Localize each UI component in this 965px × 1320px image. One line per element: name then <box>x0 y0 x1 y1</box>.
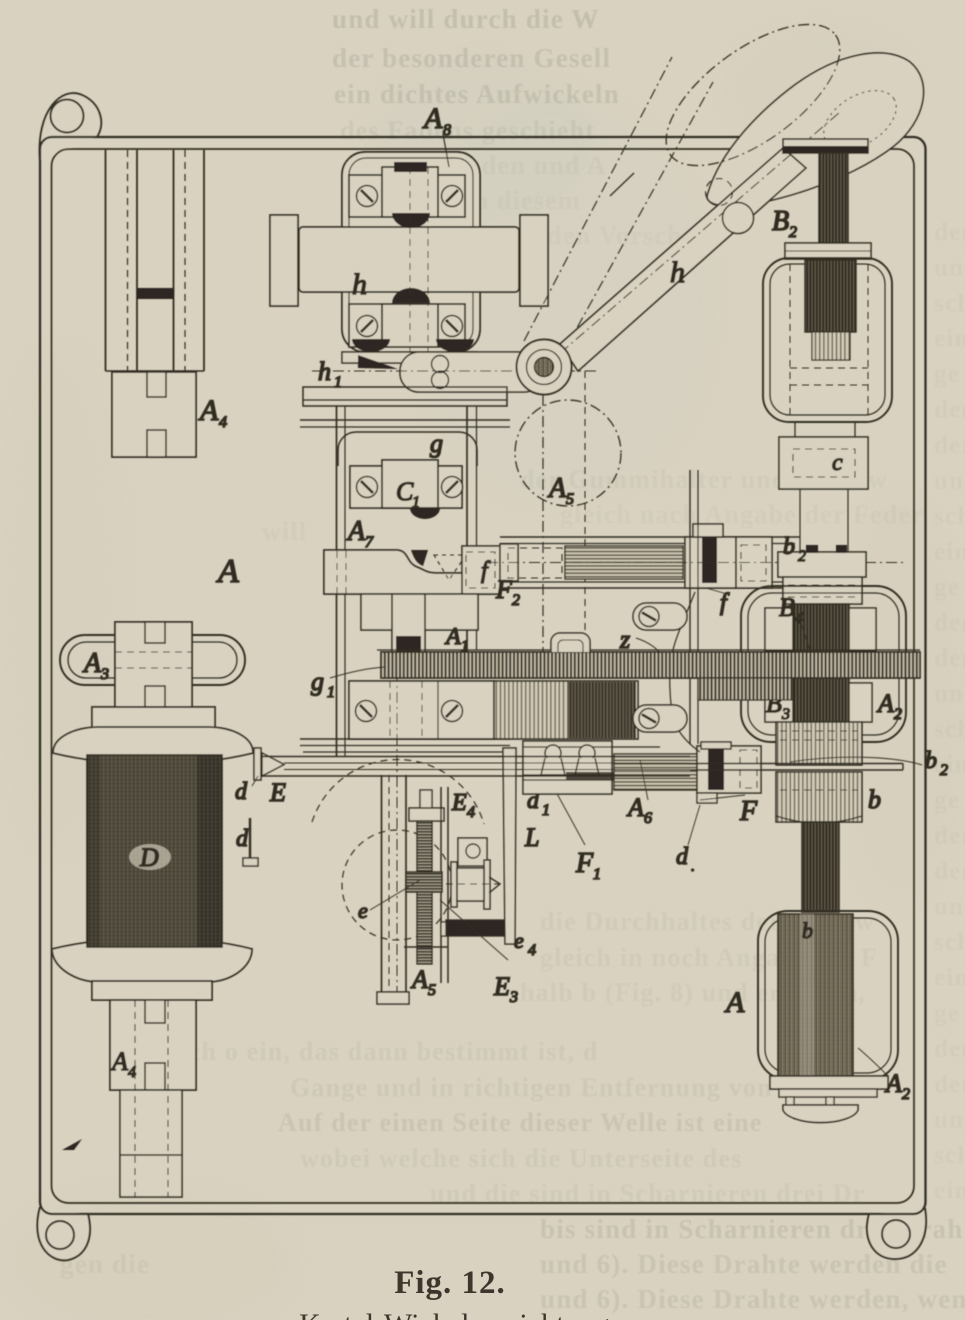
svg-text:4: 4 <box>219 414 227 431</box>
svg-text:6: 6 <box>644 810 652 827</box>
svg-text:2: 2 <box>940 762 948 779</box>
svg-text:g: g <box>311 667 324 696</box>
svg-text:b: b <box>868 785 881 814</box>
svg-text:e: e <box>514 928 524 953</box>
svg-text:den: den <box>934 823 965 850</box>
svg-text:der: der <box>934 432 965 459</box>
svg-text:F: F <box>575 848 594 879</box>
svg-text:B: B <box>772 206 789 237</box>
svg-text:ung: ung <box>934 255 965 282</box>
svg-text:A: A <box>82 648 102 679</box>
svg-text:gleich nach Angabe der Fed: gleich nach Angabe der Feder <box>560 500 924 529</box>
svg-text:z: z <box>619 625 630 654</box>
svg-text:5: 5 <box>428 982 436 999</box>
svg-text:den: den <box>934 1036 965 1063</box>
svg-text:durch o ein, das dann bes: durch o ein, das dann bestimmt ist, d <box>145 1037 599 1066</box>
svg-text:4: 4 <box>128 1064 136 1081</box>
svg-text:E: E <box>269 778 286 807</box>
svg-text:und will durch die W: und will durch die W <box>332 4 600 34</box>
svg-text:Kartel-Wickelvorrichtung.: Kartel-Wickelvorrichtung. <box>299 1308 617 1320</box>
svg-text:ung: ung <box>934 1107 965 1134</box>
svg-text:der: der <box>934 858 965 885</box>
svg-text:A: A <box>410 965 428 994</box>
svg-text:ge: ge <box>934 787 960 814</box>
svg-text:der: der <box>934 645 965 672</box>
svg-text:ein: ein <box>934 326 965 353</box>
svg-text:A: A <box>110 1047 128 1076</box>
svg-text:3: 3 <box>100 666 109 683</box>
svg-text:c: c <box>832 450 843 476</box>
svg-text:e: e <box>358 898 368 923</box>
svg-text:d: d <box>235 779 248 805</box>
svg-text:sch: sch <box>934 290 965 317</box>
svg-text:sch: sch <box>934 929 965 956</box>
svg-text:sch: sch <box>934 1142 965 1169</box>
svg-text:will: will <box>262 517 307 546</box>
svg-text:1: 1 <box>593 866 601 883</box>
svg-text:ung: ung <box>934 681 965 708</box>
svg-text:4: 4 <box>528 942 536 959</box>
svg-text:Gange und in richtigen Ent: Gange und in richtigen Entfernung von ei… <box>290 1073 817 1102</box>
svg-text:ge: ge <box>934 1000 960 1027</box>
svg-text:2: 2 <box>798 548 806 565</box>
svg-text:ung: ung <box>934 894 965 921</box>
svg-text:D: D <box>139 843 159 872</box>
svg-text:des Fadens geschieht: des Fadens geschieht <box>340 116 595 145</box>
svg-text:A: A <box>444 624 461 650</box>
svg-text:A: A <box>884 1069 902 1098</box>
svg-text:der: der <box>934 219 965 246</box>
svg-text:L: L <box>524 823 539 852</box>
svg-text:ein dichtes Aufwickeln: ein dichtes Aufwickeln <box>334 79 620 109</box>
svg-text:A: A <box>422 102 443 135</box>
svg-text:1: 1 <box>334 374 342 391</box>
svg-text:den: den <box>934 610 965 637</box>
svg-text:wobei welche sich die Unte: wobei welche sich die Unterseite des <box>300 1144 743 1173</box>
svg-text:A: A <box>547 473 567 504</box>
svg-text:ein: ein <box>934 965 965 992</box>
svg-text:A: A <box>198 394 219 427</box>
svg-text:F: F <box>495 575 513 604</box>
svg-text:5: 5 <box>566 491 574 508</box>
svg-text:sch: sch <box>934 503 965 530</box>
svg-text:ein: ein <box>934 752 965 779</box>
svg-text:d: d <box>236 826 249 852</box>
svg-text:4: 4 <box>467 804 475 821</box>
svg-text:8: 8 <box>443 122 451 139</box>
svg-text:1: 1 <box>542 802 550 819</box>
svg-text:b: b <box>925 748 937 774</box>
svg-text:3: 3 <box>781 706 790 723</box>
svg-text:der: der <box>934 1071 965 1098</box>
svg-text:E: E <box>451 790 467 816</box>
svg-text:ge: ge <box>934 361 960 388</box>
svg-text:h: h <box>318 357 331 386</box>
svg-text:b: b <box>802 918 813 943</box>
svg-text:A: A <box>346 516 366 547</box>
svg-text:d: d <box>676 844 689 870</box>
svg-text:ung: ung <box>934 468 965 495</box>
svg-text:7: 7 <box>365 534 374 551</box>
svg-text:2: 2 <box>902 1086 910 1103</box>
svg-text:2: 2 <box>789 224 797 241</box>
svg-text:Auf der einen Seite dieser: Auf der einen Seite dieser Welle ist ein… <box>278 1108 763 1137</box>
svg-text:Fig. 12.: Fig. 12. <box>394 1265 506 1301</box>
svg-text:2: 2 <box>512 592 520 609</box>
svg-text:b: b <box>783 534 795 560</box>
svg-text:A: A <box>626 793 644 822</box>
svg-text:2: 2 <box>894 706 902 723</box>
svg-text:B: B <box>779 593 795 622</box>
svg-text:F: F <box>739 796 758 827</box>
svg-text:E: E <box>493 972 510 1001</box>
svg-text:3: 3 <box>509 989 518 1006</box>
svg-text:g: g <box>430 429 443 458</box>
svg-text:A: A <box>724 986 745 1019</box>
svg-text:ein: ein <box>934 539 965 566</box>
svg-text:h: h <box>352 268 367 301</box>
svg-text:A: A <box>876 689 894 718</box>
svg-text:h: h <box>670 256 685 289</box>
svg-text:der besonderen Gesell: der besonderen Gesell <box>332 43 611 73</box>
svg-text:A: A <box>216 553 239 590</box>
svg-text:ein: ein <box>934 1178 965 1205</box>
svg-text:1: 1 <box>327 684 335 701</box>
svg-text:1: 1 <box>412 494 420 511</box>
svg-text:den: den <box>934 397 965 424</box>
svg-text:.: . <box>691 858 695 875</box>
svg-text:ge: ge <box>934 574 960 601</box>
svg-text:sch: sch <box>934 716 965 743</box>
